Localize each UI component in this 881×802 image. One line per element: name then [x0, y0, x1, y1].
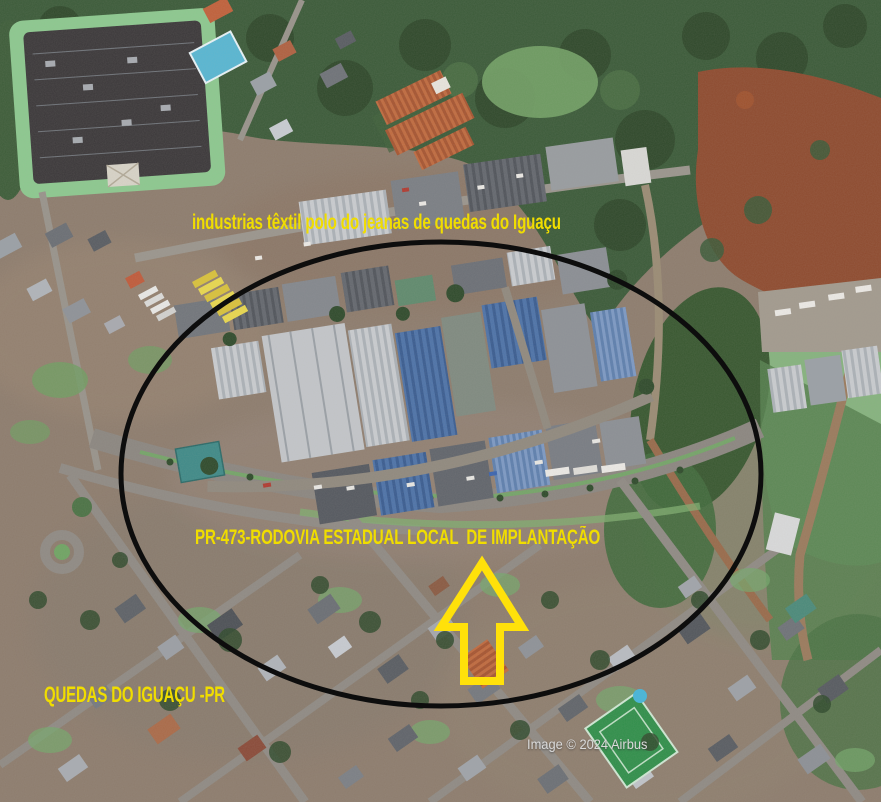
satellite-map: industrias têxtil polo do jeanas de qued… — [0, 0, 881, 802]
annotation-road-label: PR-473-RODOVIA ESTADUAL LOCAL DE IMPLANT… — [195, 527, 600, 549]
annotation-industrial-pole-label: industrias têxtil polo do jeanas de qued… — [192, 212, 561, 234]
imagery-credit-watermark: Image © 2024 Airbus — [527, 736, 647, 752]
annotation-city-label: QUEDAS DO IGUAÇU -PR — [44, 683, 225, 706]
